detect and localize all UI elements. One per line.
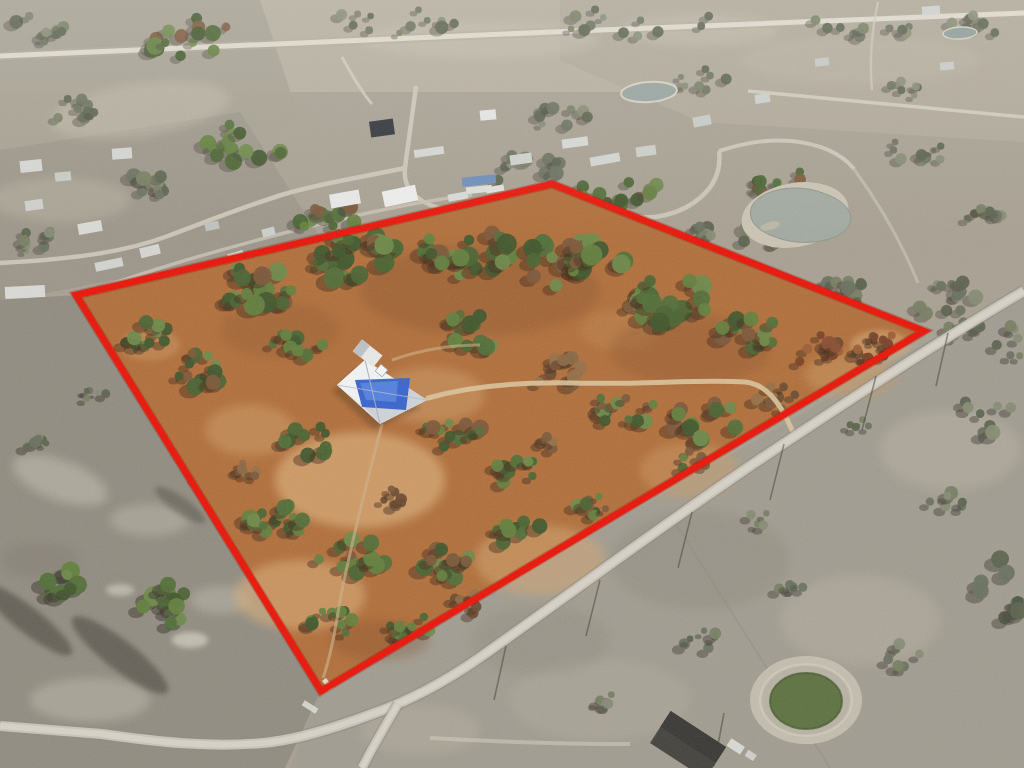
aerial-photo: Aerial drone photo of rural acreage outl… bbox=[0, 0, 1024, 768]
aerial-photo-canvas bbox=[0, 0, 1024, 768]
photo-grain bbox=[0, 0, 1024, 768]
haze-overlay bbox=[0, 0, 1024, 240]
